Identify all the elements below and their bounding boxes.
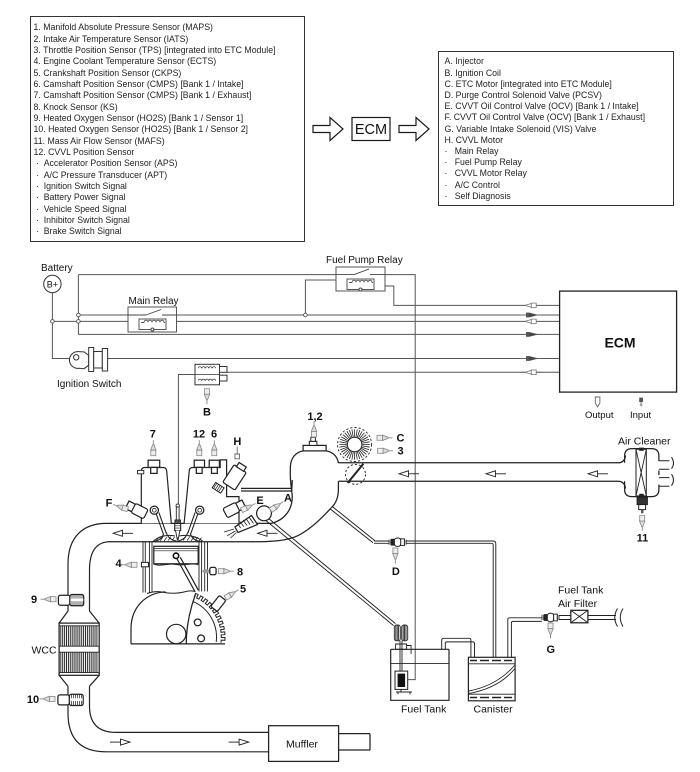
svg-text:C: C — [397, 433, 405, 445]
svg-text:1,2: 1,2 — [307, 411, 322, 423]
svg-text:Battery: Battery — [41, 263, 73, 274]
svg-text:E: E — [256, 495, 263, 507]
svg-text:A: A — [284, 493, 292, 505]
svg-text:Muffler: Muffler — [286, 739, 318, 751]
svg-text:Fuel Pump Relay: Fuel Pump Relay — [326, 255, 403, 266]
svg-text:F: F — [106, 497, 113, 509]
svg-text:3: 3 — [398, 446, 404, 458]
svg-text:4: 4 — [115, 558, 122, 570]
svg-text:Canister: Canister — [474, 704, 514, 716]
svg-text:Output: Output — [585, 410, 614, 421]
svg-text:B: B — [203, 407, 211, 419]
svg-text:H: H — [233, 436, 241, 448]
svg-text:10: 10 — [27, 694, 39, 706]
svg-text:WCC: WCC — [32, 644, 57, 656]
svg-text:G: G — [547, 644, 556, 656]
svg-text:Fuel Tank: Fuel Tank — [558, 585, 604, 597]
svg-text:7: 7 — [150, 428, 156, 440]
svg-text:5: 5 — [240, 583, 246, 595]
svg-text:ECM: ECM — [604, 335, 635, 351]
svg-text:6: 6 — [211, 428, 217, 440]
svg-text:Input: Input — [630, 410, 651, 421]
svg-text:Main Relay: Main Relay — [129, 296, 179, 307]
svg-text:11: 11 — [637, 532, 649, 544]
svg-text:Fuel Tank: Fuel Tank — [401, 704, 447, 716]
svg-text:Ignition Switch: Ignition Switch — [57, 379, 121, 390]
svg-text:8: 8 — [237, 567, 243, 579]
svg-text:Air Cleaner: Air Cleaner — [618, 436, 671, 448]
svg-text:Air Filter: Air Filter — [558, 598, 598, 610]
svg-text:9: 9 — [31, 594, 37, 606]
svg-text:B+: B+ — [47, 280, 58, 290]
svg-text:12: 12 — [193, 428, 205, 440]
svg-text:D: D — [392, 566, 400, 578]
svg-text:ECM: ECM — [355, 122, 387, 138]
